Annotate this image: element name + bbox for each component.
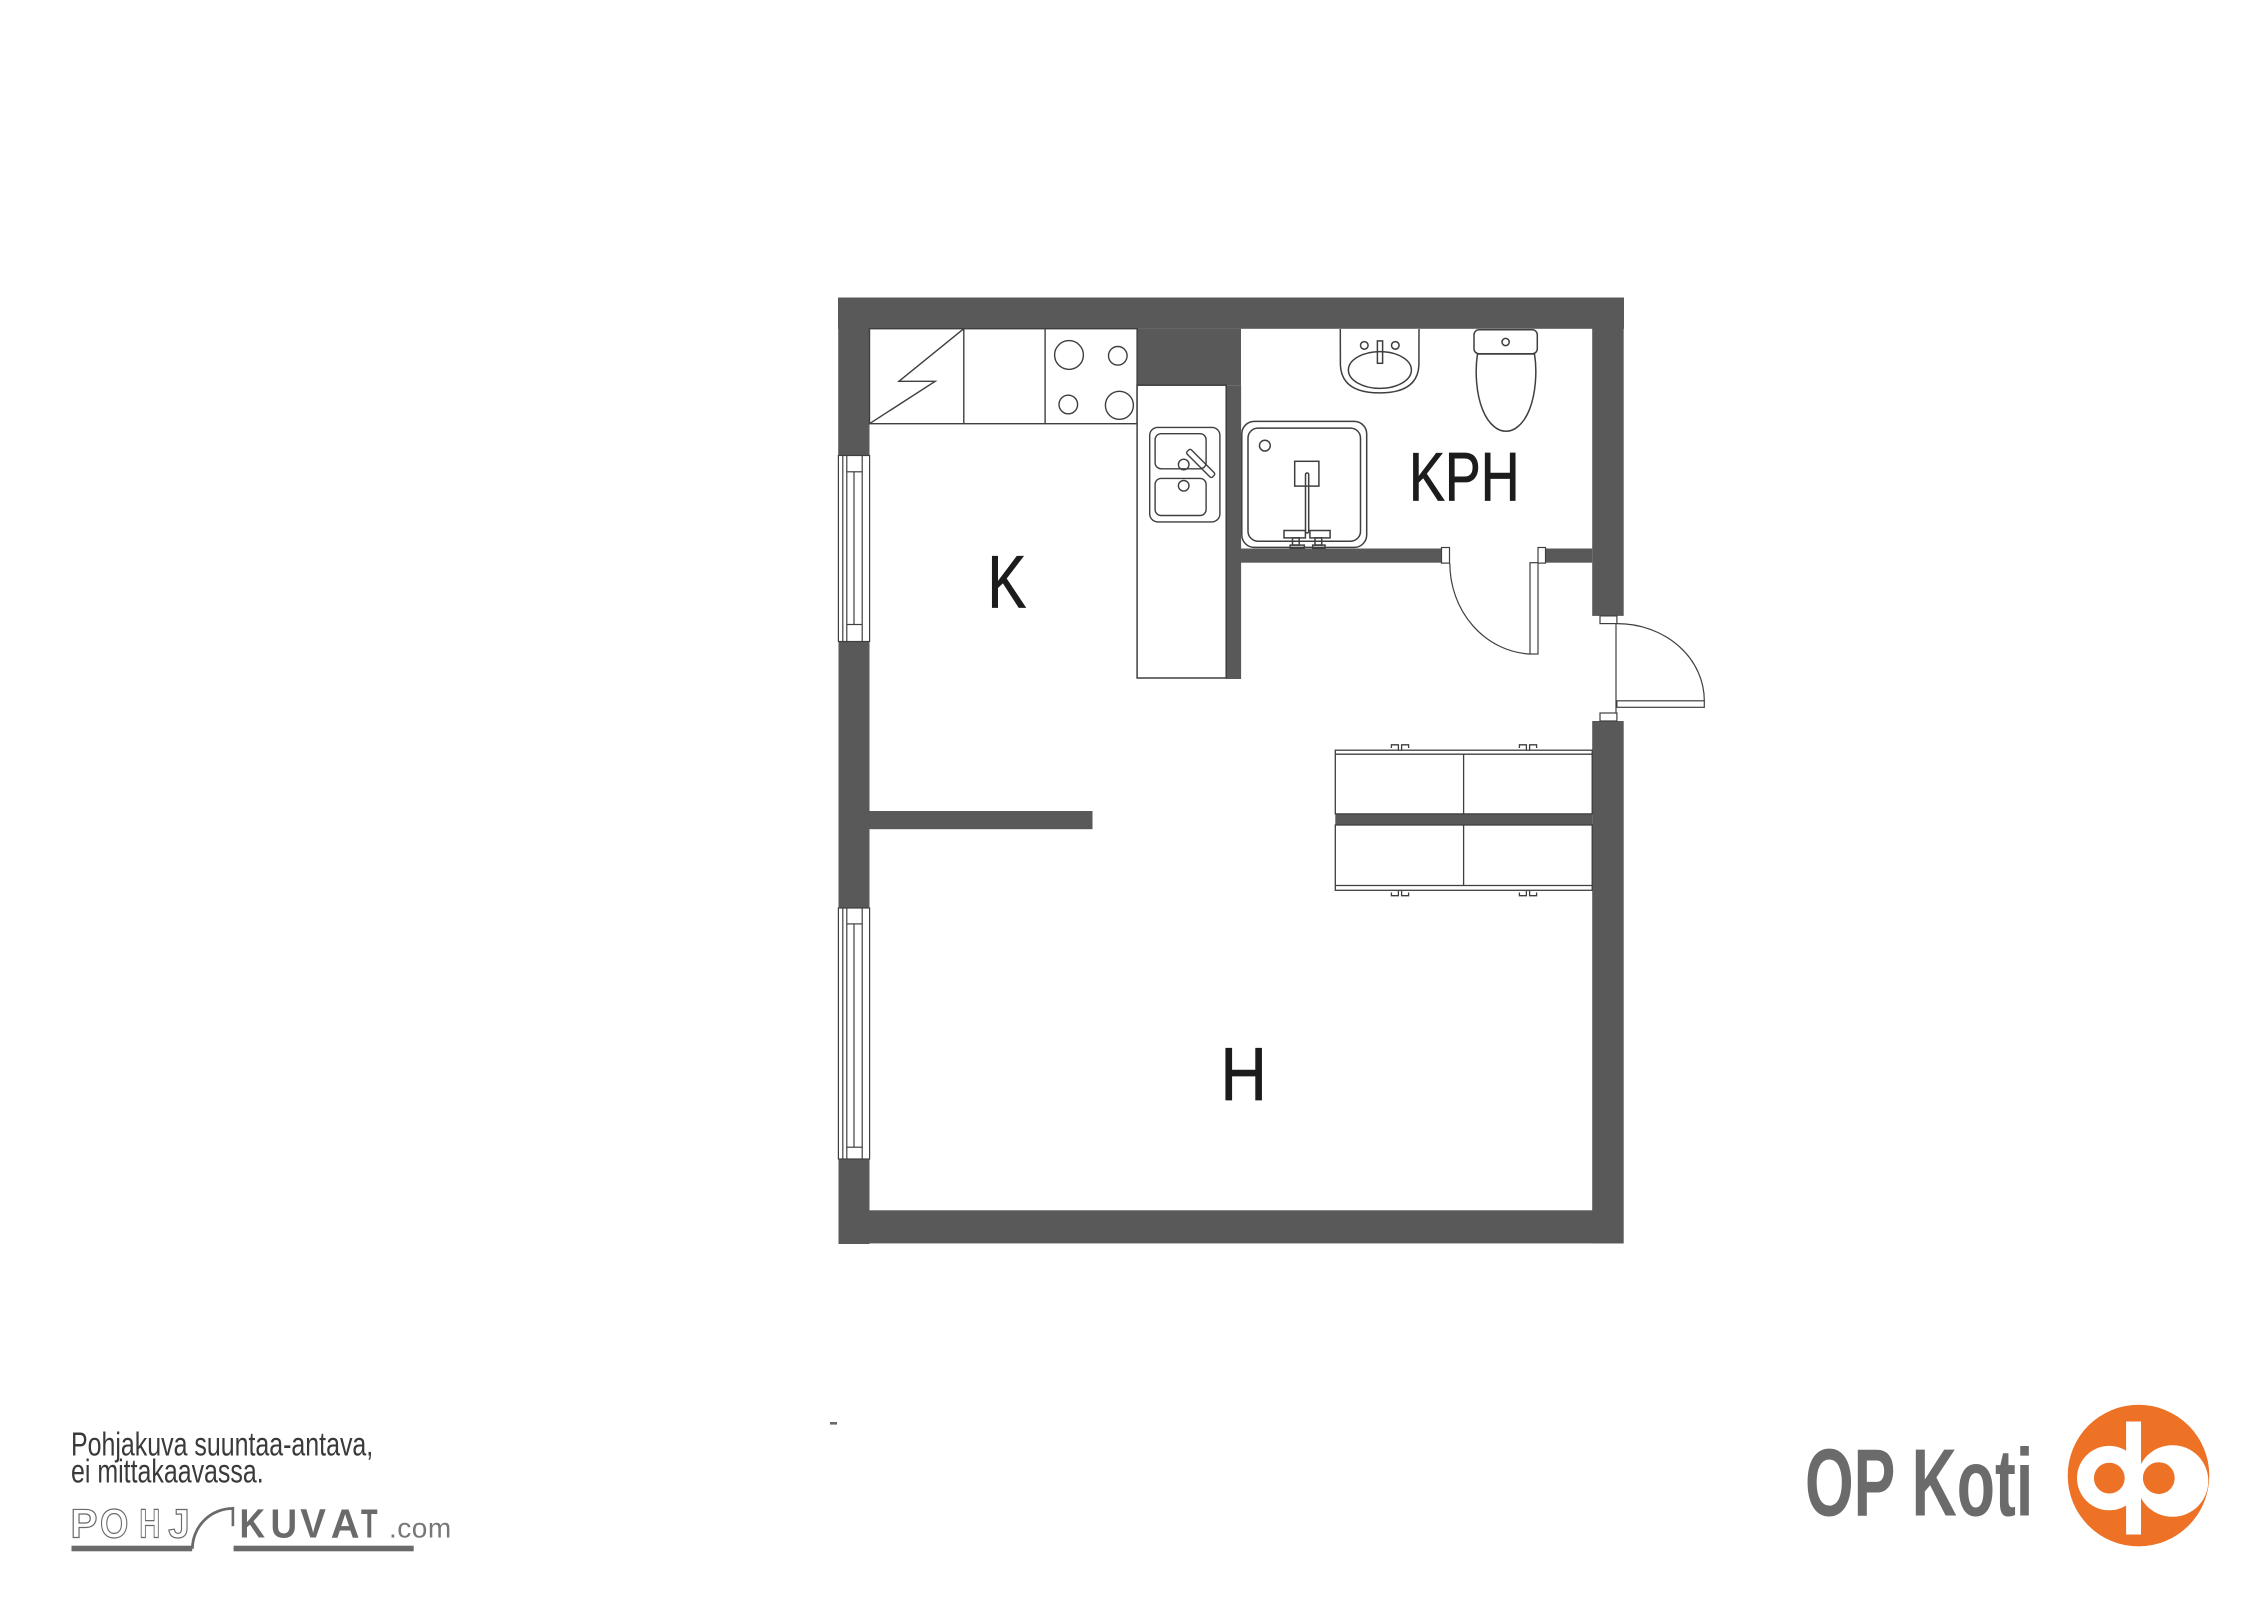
svg-text:K: K — [987, 542, 1026, 625]
svg-text:KPH: KPH — [1409, 439, 1520, 516]
svg-text:U: U — [271, 1502, 298, 1547]
svg-text:OP Koti: OP Koti — [1805, 1430, 2033, 1536]
svg-text:T: T — [361, 1502, 378, 1547]
svg-text:ei mittakaavassa.: ei mittakaavassa. — [71, 1453, 264, 1490]
svg-text:P: P — [71, 1500, 98, 1546]
svg-text:H: H — [139, 1502, 160, 1547]
svg-text:K: K — [240, 1502, 266, 1547]
svg-text:V: V — [300, 1501, 326, 1546]
svg-text:O: O — [100, 1502, 128, 1547]
svg-text:A: A — [331, 1501, 360, 1546]
svg-text:.com: .com — [389, 1512, 452, 1543]
svg-text:H: H — [1221, 1032, 1267, 1116]
svg-text:J: J — [168, 1501, 189, 1546]
